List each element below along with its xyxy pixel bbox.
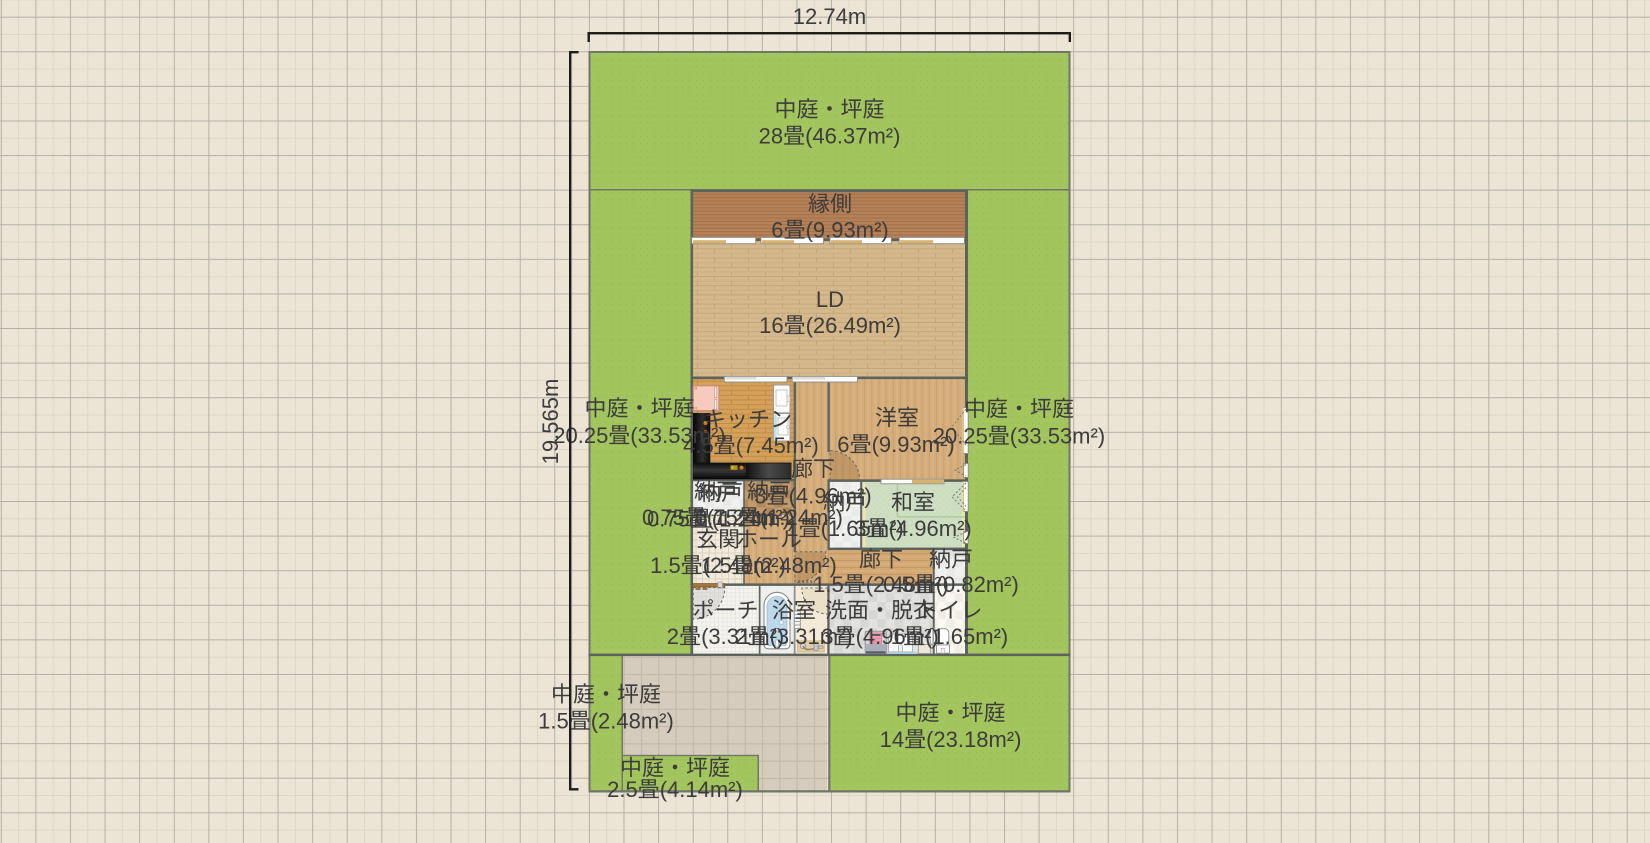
- svg-text:1: 1: [786, 516, 798, 541]
- svg-text:1.5: 1.5: [701, 553, 732, 578]
- svg-text:28: 28: [759, 123, 783, 148]
- svg-text:(33.53m²): (33.53m²): [1010, 423, 1105, 448]
- svg-text:(0.82m²): (0.82m²): [936, 572, 1019, 597]
- svg-text:0.75: 0.75: [695, 505, 738, 530]
- svg-text:(46.37m²): (46.37m²): [805, 123, 900, 148]
- svg-text:1.5: 1.5: [538, 708, 569, 733]
- svg-text:(7.45m²): (7.45m²): [736, 433, 819, 458]
- svg-text:12.74m: 12.74m: [793, 4, 866, 29]
- svg-text:6: 6: [837, 432, 849, 457]
- svg-text:0.5: 0.5: [883, 572, 914, 597]
- svg-text:4.5: 4.5: [683, 433, 714, 458]
- svg-text:3: 3: [821, 624, 833, 649]
- svg-text:14: 14: [880, 727, 904, 752]
- svg-text:1.5: 1.5: [813, 572, 844, 597]
- svg-text:2: 2: [735, 624, 747, 649]
- svg-text:2: 2: [667, 624, 679, 649]
- svg-text:(9.93m²): (9.93m²): [806, 217, 889, 242]
- svg-text:19.565m: 19.565m: [538, 379, 563, 465]
- svg-text:(23.18m²): (23.18m²): [926, 727, 1021, 752]
- svg-text:0.75: 0.75: [647, 506, 690, 531]
- svg-text:(4.14m²): (4.14m²): [660, 777, 743, 802]
- svg-text:(1.65m²): (1.65m²): [925, 624, 1008, 649]
- svg-text:6: 6: [771, 217, 783, 242]
- svg-text:1.5: 1.5: [650, 553, 681, 578]
- svg-text:(2.48m²): (2.48m²): [591, 708, 674, 733]
- svg-text:16: 16: [759, 313, 783, 338]
- svg-text:20.25: 20.25: [933, 423, 988, 448]
- svg-text:2.5: 2.5: [607, 777, 638, 802]
- svg-text:1: 1: [891, 624, 903, 649]
- svg-text:3: 3: [854, 516, 866, 541]
- svg-text:(4.96m²): (4.96m²): [889, 516, 972, 541]
- svg-text:LD: LD: [816, 287, 844, 312]
- svg-text:(26.49m²): (26.49m²): [806, 313, 901, 338]
